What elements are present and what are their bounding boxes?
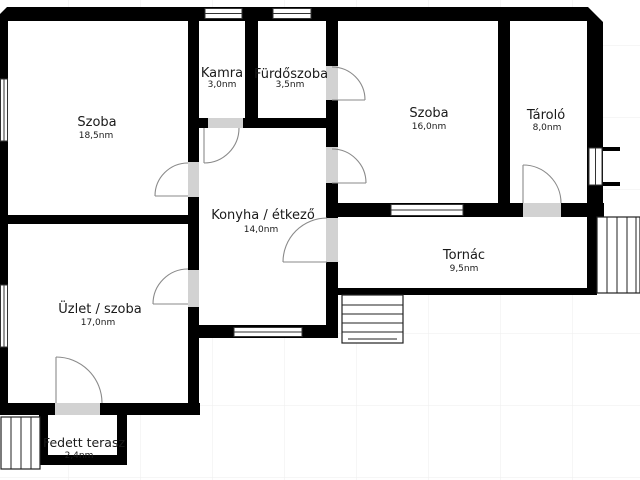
window-tarolo-right [589,148,602,185]
room-area-tornac: 9,5nm [450,264,479,274]
door-opening-szoba1-konyha [188,162,199,197]
stairs-tornac-east [597,217,640,293]
room-area-kamra: 3,0nm [208,80,237,90]
wall-furdo-bottom [243,118,326,128]
room-name-tarolo: Tároló [526,108,565,123]
room-area-terasz: 2,4nm [65,451,94,461]
window-furdo-top [273,9,311,19]
room-area-furdoszoba: 3,5nm [276,80,305,90]
window-konyha-bottom [234,328,302,337]
door-opening-kamra [208,118,243,128]
window-szoba2-bottom [391,205,463,216]
door-opening-uzlet-terasz [55,403,100,415]
room-name-terasz: Fedett terasz [43,435,126,450]
room-name-szoba-2: Szoba [409,106,448,121]
wall-left-outer [0,7,8,415]
window-sill-tick-bottom [603,182,620,186]
room-area-konyha: 14,0nm [244,225,279,235]
door-opening-konyha-szoba2 [326,147,338,183]
room-name-tornac: Tornác [442,248,485,263]
wall-szoba2-tarolo [498,21,510,203]
wall-kamra-bottom [199,118,208,128]
wall-tornac-right [587,217,597,295]
stairs-tornac-south [342,295,403,343]
door-opening-uzlet-konyha [188,270,199,307]
room-name-uzlet: Üzlet / szoba [58,300,141,317]
room-area-uzlet: 17,0nm [81,318,116,328]
window-szoba1-left [1,79,8,141]
window-uzlet-left [1,285,8,347]
door-opening-tornac-tarolo [523,203,561,217]
window-sill-tick-top [603,147,620,151]
room-name-konyha: Konyha / étkező [211,208,315,223]
floor-plan: Szoba 18,5nm Kamra 3,0nm Fürdőszoba 3,5n… [0,0,640,480]
room-area-tarolo: 8,0nm [533,123,562,133]
window-kamra-top [205,9,242,19]
wall-szoba-uzlet-divider [0,215,199,224]
room-area-szoba-2: 16,0nm [412,122,447,132]
wall-tornac-top [326,203,604,217]
room-area-szoba-1: 18,5nm [79,131,114,141]
stairs-southwest [1,417,40,469]
door-opening-konyha-tornac [326,218,338,262]
room-name-szoba-1: Szoba [77,115,116,130]
wall-tornac-bottom [338,288,597,295]
room-name-kamra: Kamra [201,66,243,81]
